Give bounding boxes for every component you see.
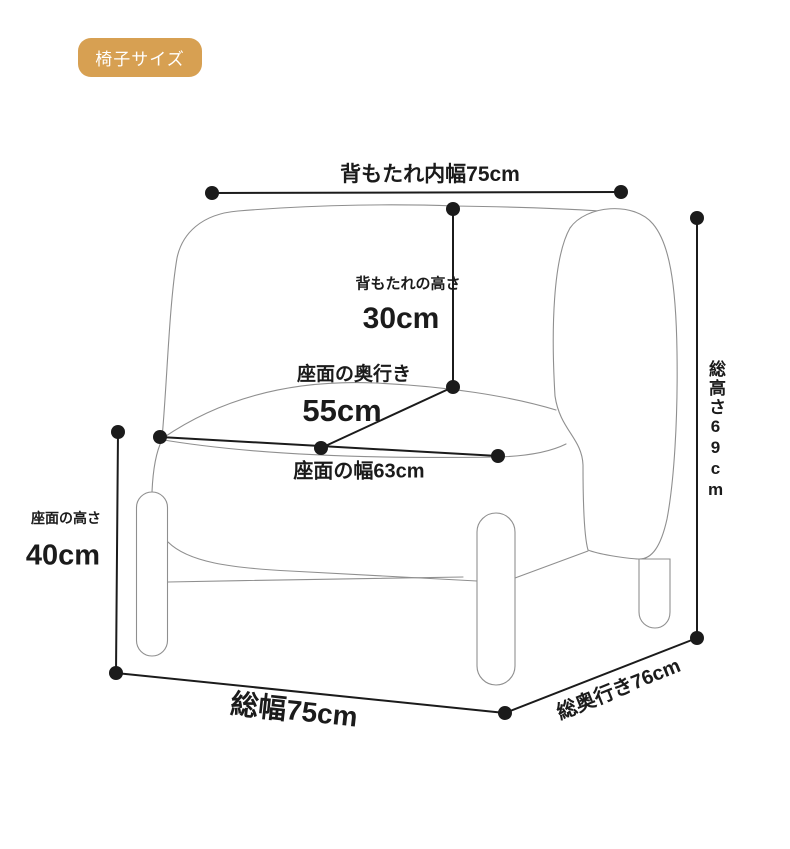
dim-dot: [498, 706, 512, 720]
chair-front-left-leg: [137, 492, 168, 656]
backrest-inner-width-label: 背もたれ内幅75cm: [340, 163, 520, 187]
chair-skirt-bottom-edge: [168, 542, 477, 581]
total-height-label: 総高さ69cm: [703, 360, 728, 501]
chair-drawing: [0, 0, 790, 849]
dim-dot: [446, 202, 460, 216]
chair-stretcher-diagonal: [515, 551, 588, 578]
size-badge: 椅子サイズ: [78, 38, 202, 77]
chair-size-diagram: 椅子サイズ 背もたれ内幅75cm 背もたれの高さ 30cm 座面の奥行き 55c…: [0, 0, 790, 849]
dim-dot: [690, 211, 704, 225]
dim-line-seat-height: [116, 432, 118, 673]
chair-back-right-leg: [639, 559, 670, 628]
dim-dot: [205, 186, 219, 200]
seat-width-label: 座面の幅63cm: [293, 461, 424, 484]
dim-dot: [614, 185, 628, 199]
seat-depth-value: 55cm: [302, 393, 381, 429]
seat-height-label: 座面の高さ: [31, 510, 101, 526]
chair-stretcher-rail: [168, 577, 463, 582]
dim-dot: [491, 449, 505, 463]
dim-dot: [690, 631, 704, 645]
dim-dot: [111, 425, 125, 439]
chair-left-side-outline: [152, 440, 162, 492]
dim-dot: [109, 666, 123, 680]
seat-depth-label: 座面の奥行き: [297, 364, 411, 386]
size-badge-label: 椅子サイズ: [95, 45, 185, 70]
dim-dot: [446, 380, 460, 394]
chair-front-right-leg: [477, 513, 515, 685]
seat-height-value: 40cm: [26, 539, 100, 572]
chair-armrest-outline: [553, 209, 677, 559]
dim-dot: [153, 430, 167, 444]
dim-line-backrest-inner-width: [212, 192, 621, 193]
backrest-height-label: 背もたれの高さ: [355, 275, 460, 292]
dim-dot: [314, 441, 328, 455]
backrest-height-value: 30cm: [363, 302, 440, 337]
